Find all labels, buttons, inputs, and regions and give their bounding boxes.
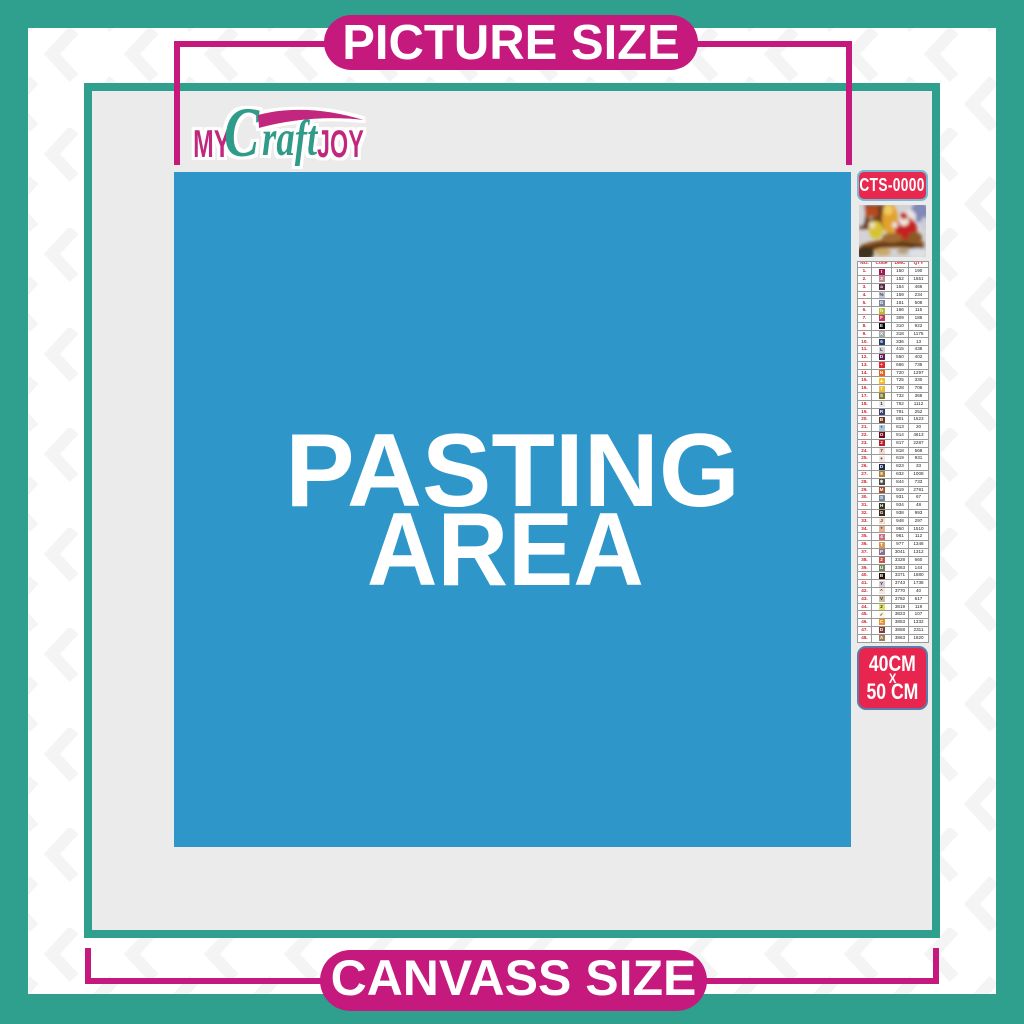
svg-text:JOY: JOY	[317, 122, 364, 166]
svg-text:C: C	[224, 92, 260, 170]
